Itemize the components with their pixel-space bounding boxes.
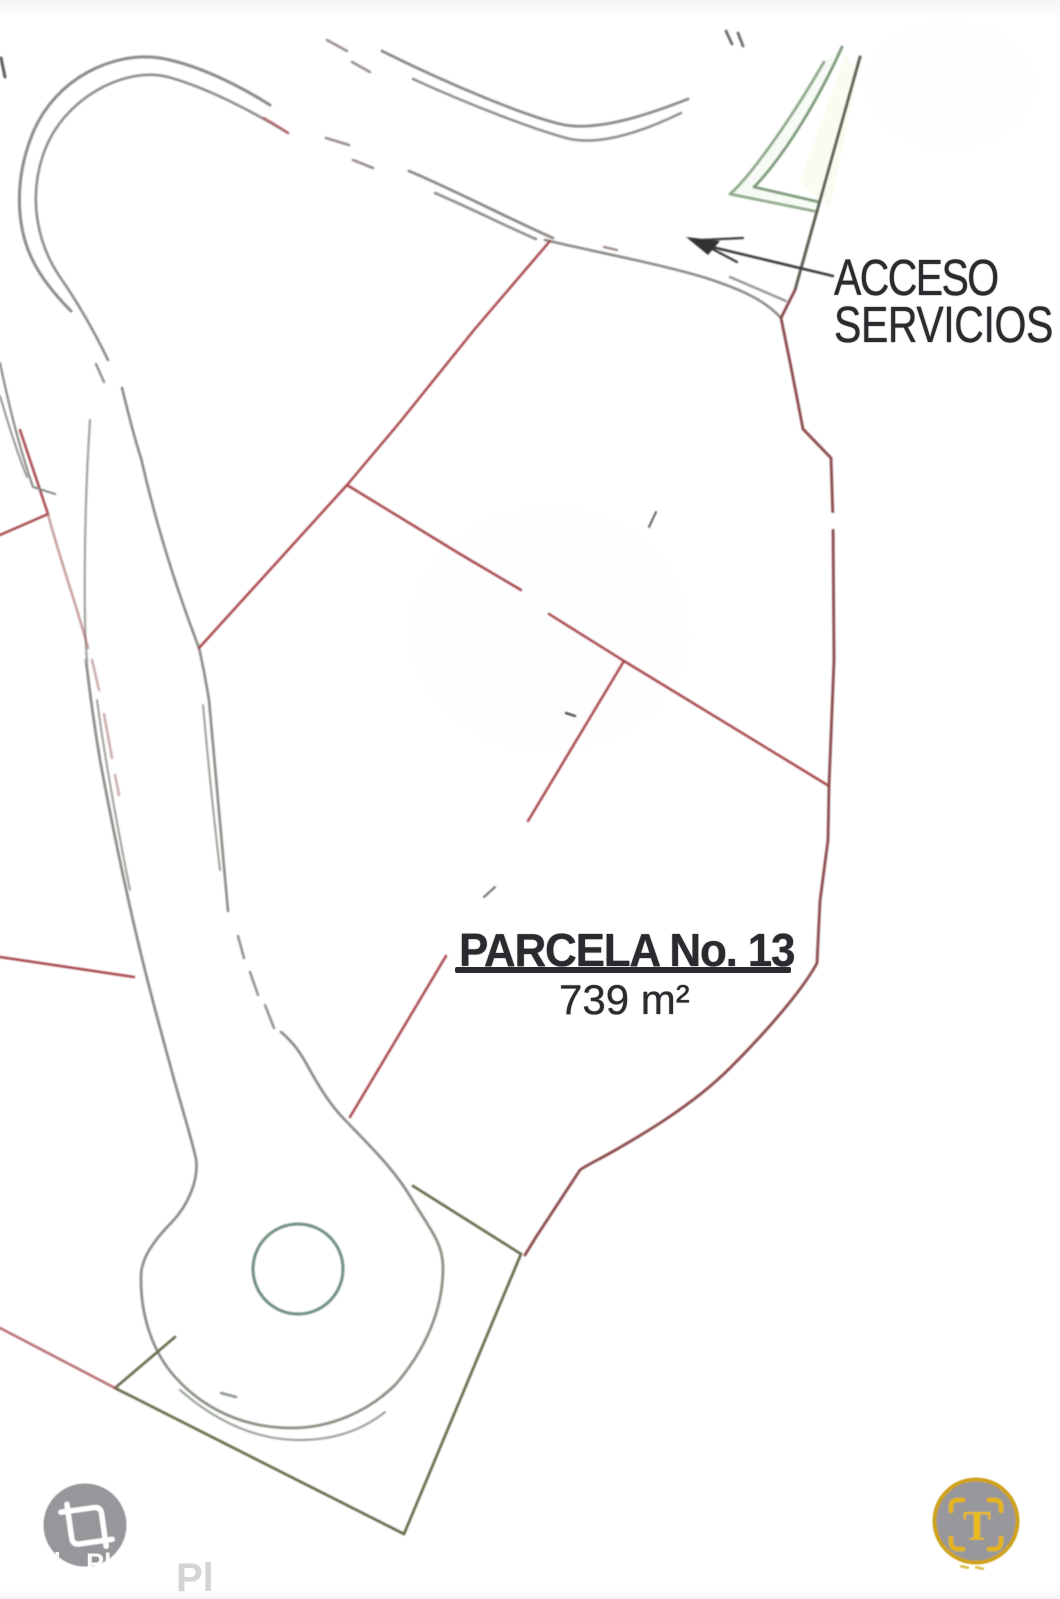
svg-text:T: T [963, 1504, 991, 1550]
